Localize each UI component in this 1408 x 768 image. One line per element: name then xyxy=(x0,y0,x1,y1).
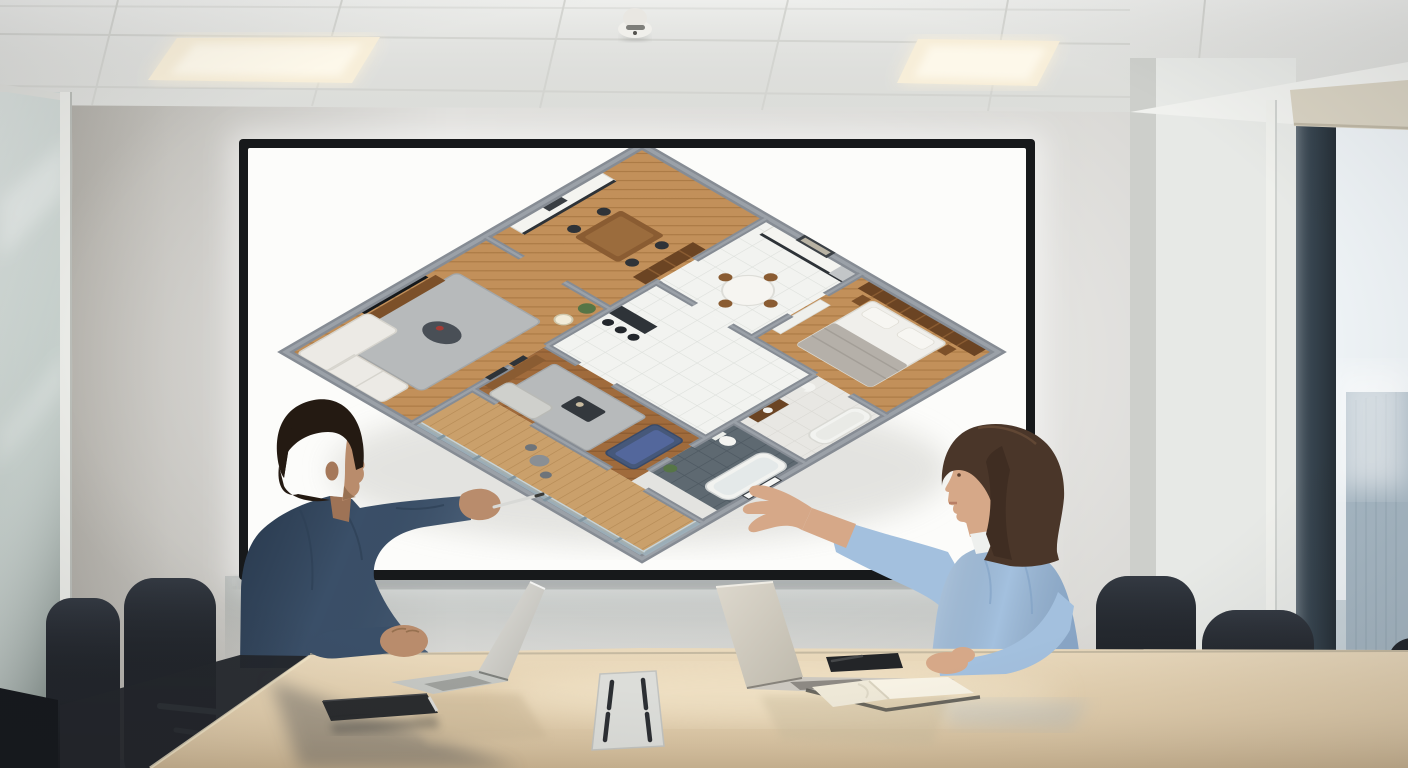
vignette xyxy=(0,0,1408,768)
scene-svg xyxy=(0,0,1408,768)
conference-room-scene xyxy=(0,0,1408,768)
